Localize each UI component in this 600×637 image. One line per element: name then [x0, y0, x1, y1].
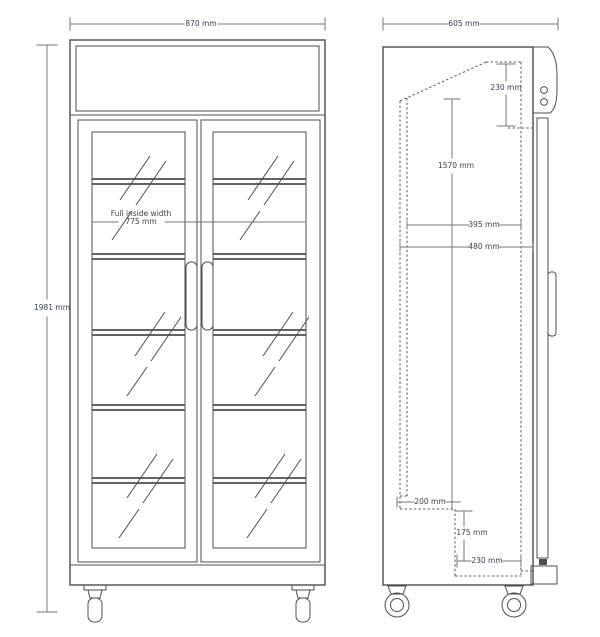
dimension-line: [37, 45, 57, 612]
door-bottom-hinge: [539, 559, 547, 565]
bottom-hinge-bracket: [531, 566, 557, 584]
shelf-lines: [213, 179, 306, 483]
side-base-front-depth-label: 230 mm: [471, 556, 502, 565]
caster-hub: [391, 599, 404, 612]
header-sign-panel: [76, 46, 319, 111]
side-header-height-dimension: 230 mm: [490, 64, 521, 126]
caster-fork: [296, 590, 310, 598]
caster-side-front: [502, 586, 526, 617]
side-base-recess-depth-label: 200 mm: [414, 497, 445, 506]
caster-wheel: [296, 598, 310, 622]
caster-front-right: [292, 585, 314, 622]
dimension-line: [497, 64, 515, 126]
side-upper-depth-dimension: 395 mm: [407, 220, 521, 229]
side-interior-height-label: 1570 mm: [438, 161, 474, 170]
hinge-pin-icon: [541, 99, 548, 106]
side-mid-depth-dimension: 480 mm: [400, 242, 533, 251]
front-overall-width-label: 870 mm: [185, 19, 216, 28]
side-overall-depth-dimension: 605 mm: [383, 18, 558, 30]
side-base-front-depth-dimension: 230 mm: [457, 555, 521, 567]
door-edge-profile: [537, 118, 548, 558]
front-view: 870 mm 1981 mm: [34, 18, 325, 622]
door-glass: [92, 132, 185, 548]
inside-width-value: 775 mm: [125, 217, 156, 226]
left-door-handle: [186, 262, 197, 330]
side-header-height-label: 230 mm: [490, 83, 521, 92]
side-base-recess-height-label: 175 mm: [456, 528, 487, 537]
side-view: 605 mm 230 mm 1570 mm 395 mm: [383, 18, 558, 617]
caster-wheel: [502, 593, 526, 617]
caster-wheel: [385, 593, 409, 617]
front-overall-width-dimension: 870 mm: [70, 18, 325, 30]
caster-plate: [84, 585, 106, 590]
side-casters: [385, 586, 526, 617]
front-casters: [84, 585, 314, 622]
cabinet-side-outline: [383, 47, 533, 585]
side-door-handle: [548, 272, 556, 336]
inside-width-dimension: Full inside width 775 mm: [92, 209, 306, 226]
dimension-line: [444, 99, 460, 502]
caster-hub: [508, 599, 521, 612]
front-door-left: [78, 120, 197, 562]
door-leaf: [78, 120, 197, 562]
caster-fork: [88, 590, 102, 598]
door-glass: [213, 132, 306, 548]
front-door-handles: [186, 262, 213, 330]
side-cabinet: [383, 47, 557, 585]
side-upper-depth-label: 395 mm: [468, 220, 499, 229]
side-overall-depth-label: 605 mm: [448, 19, 479, 28]
front-door-right: [201, 120, 320, 562]
drawing-canvas: 870 mm 1981 mm: [0, 0, 600, 637]
glass-reflection-marks: [240, 156, 309, 538]
dimension-line: [400, 243, 533, 251]
control-panel-bulge: [533, 47, 557, 113]
right-door-handle: [202, 262, 213, 330]
caster-front-left: [84, 585, 106, 622]
door-leaf: [201, 120, 320, 562]
side-mid-depth-label: 480 mm: [468, 242, 499, 251]
hinge-pin-icon: [541, 87, 548, 94]
dimension-line: [407, 221, 521, 229]
caster-side-rear: [385, 586, 409, 617]
front-overall-height-dimension: 1981 mm: [34, 45, 70, 612]
front-overall-height-label: 1981 mm: [34, 303, 70, 312]
side-base-recess-height-dimension: 175 mm: [456, 511, 488, 561]
side-interior-height-dimension: 1570 mm: [438, 99, 474, 502]
caster-plate: [292, 585, 314, 590]
technical-drawing: 870 mm 1981 mm: [0, 0, 600, 637]
caster-wheel: [88, 598, 102, 622]
